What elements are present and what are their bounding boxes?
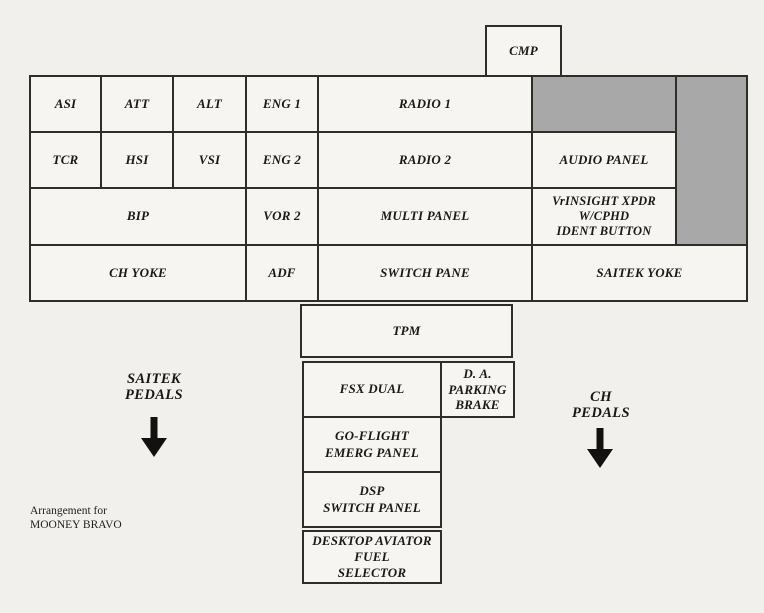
cell-eng1: ENG 1 — [246, 76, 318, 132]
cell-radio1: RADIO 1 — [318, 76, 532, 132]
cmp-box: CMP — [485, 25, 562, 77]
panel-grid: ASI ATT ALT ENG 1 RADIO 1 TCR HSI VSI EN… — [29, 75, 748, 302]
cell-alt: ALT — [173, 76, 246, 132]
cell-hsi: HSI — [101, 132, 173, 188]
fsx-dual-box: FSX DUAL — [302, 361, 442, 418]
cell-adf: ADF — [246, 245, 318, 301]
cell-vor2: VOR 2 — [246, 188, 318, 245]
down-arrow-icon — [141, 417, 167, 457]
cell-multi-panel: MULTI PANEL — [318, 188, 532, 245]
tpm-box: TPM — [300, 304, 513, 358]
cell-audio-panel: AUDIO PANEL — [532, 132, 676, 188]
cell-bip: BIP — [30, 188, 246, 245]
cell-att: ATT — [101, 76, 173, 132]
go-flight-emerg-panel-box: GO-FLIGHT EMERG PANEL — [302, 416, 442, 473]
cell-vrinsight-xpdr: VrINSIGHT XPDR W/CPHD IDENT BUTTON — [532, 188, 676, 245]
dsp-switch-panel-box: DSP SWITCH PANEL — [302, 471, 442, 528]
mooney-bravo-arrangement-diagram: CMP ASI ATT ALT ENG 1 RADIO 1 TCR HSI VS… — [0, 0, 764, 613]
da-parking-brake-box: D. A. PARKING BRAKE — [440, 361, 515, 418]
cell-eng2: ENG 2 — [246, 132, 318, 188]
arrangement-caption: Arrangement for MOONEY BRAVO — [30, 505, 122, 532]
cell-asi: ASI — [30, 76, 101, 132]
desktop-aviator-fuel-selector-box: DESKTOP AVIATOR FUEL SELECTOR — [302, 530, 442, 584]
gray-panel-top — [532, 76, 676, 132]
ch-pedals-label: CH PEDALS — [541, 389, 661, 421]
cell-ch-yoke: CH YOKE — [30, 245, 246, 301]
gray-panel-right-column — [676, 76, 747, 245]
cell-radio2: RADIO 2 — [318, 132, 532, 188]
cell-vsi: VSI — [173, 132, 246, 188]
down-arrow-icon — [587, 428, 613, 468]
cell-tcr: TCR — [30, 132, 101, 188]
cell-switch-pane: SWITCH PANE — [318, 245, 532, 301]
cell-saitek-yoke: SAITEK YOKE — [532, 245, 747, 301]
saitek-pedals-label: SAITEK PEDALS — [94, 371, 214, 403]
